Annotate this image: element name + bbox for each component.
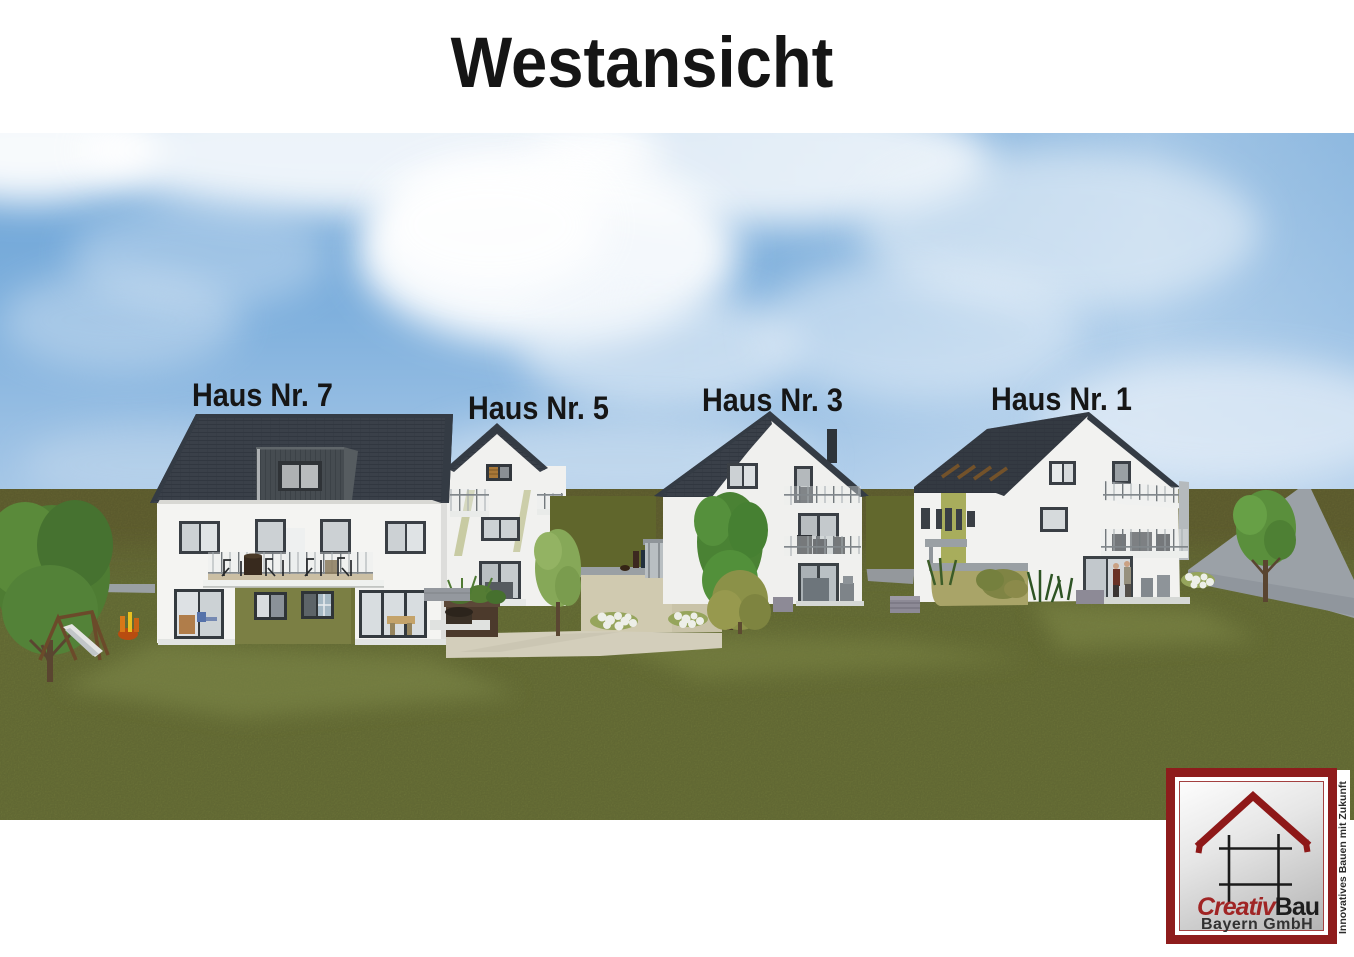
svg-text:Haus Nr. 7: Haus Nr. 7 — [192, 378, 333, 414]
svg-text:Bayern GmbH: Bayern GmbH — [1201, 916, 1313, 932]
svg-text:Haus Nr. 1: Haus Nr. 1 — [991, 382, 1132, 418]
svg-text:Haus Nr. 5: Haus Nr. 5 — [468, 391, 609, 427]
svg-text:Haus Nr. 3: Haus Nr. 3 — [702, 383, 843, 419]
